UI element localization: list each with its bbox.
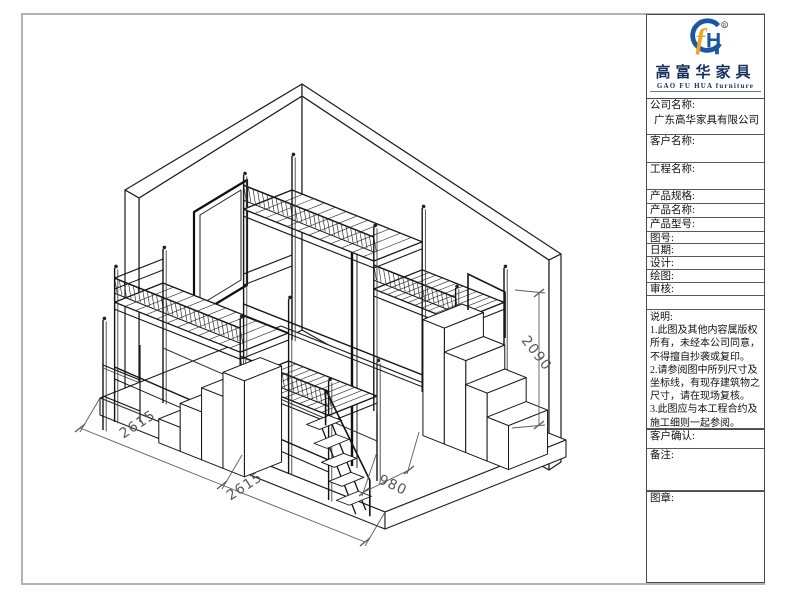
field-date: 日期: [647,244,764,257]
field-remark: 备注: [647,449,764,491]
svg-text:H: H [706,30,721,53]
field-product-model: 产品型号: [647,218,764,232]
field-label: 客户确认: [650,431,761,444]
field-auditor: 审核: [647,283,764,296]
field-label: 图章: [650,493,761,506]
field-product-spec: 产品规格: [647,190,764,204]
svg-text:R: R [722,23,726,29]
isometric-drawing: 261526159802090 [21,14,646,584]
field-label: 绘图: [650,271,761,283]
field-project-name: 工程名称: [647,163,764,190]
field-customer-name: 客户名称: [647,135,764,163]
field-label: 公司名称: [650,100,761,113]
field-designer: 设计: [647,257,764,270]
field-label: 图号: [650,233,761,244]
field-product-name: 产品名称: [647,204,764,218]
note-item: 2.请参阅图中所列尺寸及坐标线，有现存建筑物之尺寸，请在现场复核。 [650,364,761,404]
field-label: 产品名称: [650,205,761,218]
field-draftsman: 绘图: [647,270,764,283]
logo-cell: f H R 高富华家具 GAO FU HUA furniture [647,15,764,99]
note-item: 3.此图应与本工程合约及施工细则一起参阅。 [650,403,761,429]
field-label: 产品型号: [650,219,761,232]
drawing-sheet: { "page": { "background": "#ffffff", "fr… [0,0,800,600]
field-label: 产品规格: [650,191,761,204]
company-name-value: 广东高华家具有限公司 [650,115,761,128]
field-label: 审核: [650,284,761,296]
field-label: 设计: [650,258,761,270]
title-block: f H R 高富华家具 GAO FU HUA furniture 公司名称: 广… [646,14,765,583]
gaofuhua-logo-icon: f H R [682,17,730,59]
notes-label: 说明: [650,311,761,324]
brand-name-en: GAO FU HUA furniture [650,82,761,92]
field-label: 工程名称: [650,164,761,177]
field-company-name: 公司名称: 广东高华家具有限公司 [647,99,764,135]
brand-name-cn: 高富华家具 [650,64,761,82]
field-label: 客户名称: [650,136,761,149]
field-customer-confirm: 客户确认: [647,429,764,449]
isometric-drawing-area: 261526159802090 [21,14,646,584]
field-drawing-number: 图号: [647,232,764,244]
field-label: 日期: [650,245,761,257]
field-seal: 图章: [647,491,764,584]
notes-cell: 说明: 1.此图及其他内容属版权所有，未经本公司同意，不得擅自抄袭或复印。 2.… [647,310,764,429]
note-item: 1.此图及其他内容属版权所有，未经本公司同意，不得擅自抄袭或复印。 [650,324,761,364]
empty-row [647,296,764,310]
field-label: 备注: [650,450,761,463]
